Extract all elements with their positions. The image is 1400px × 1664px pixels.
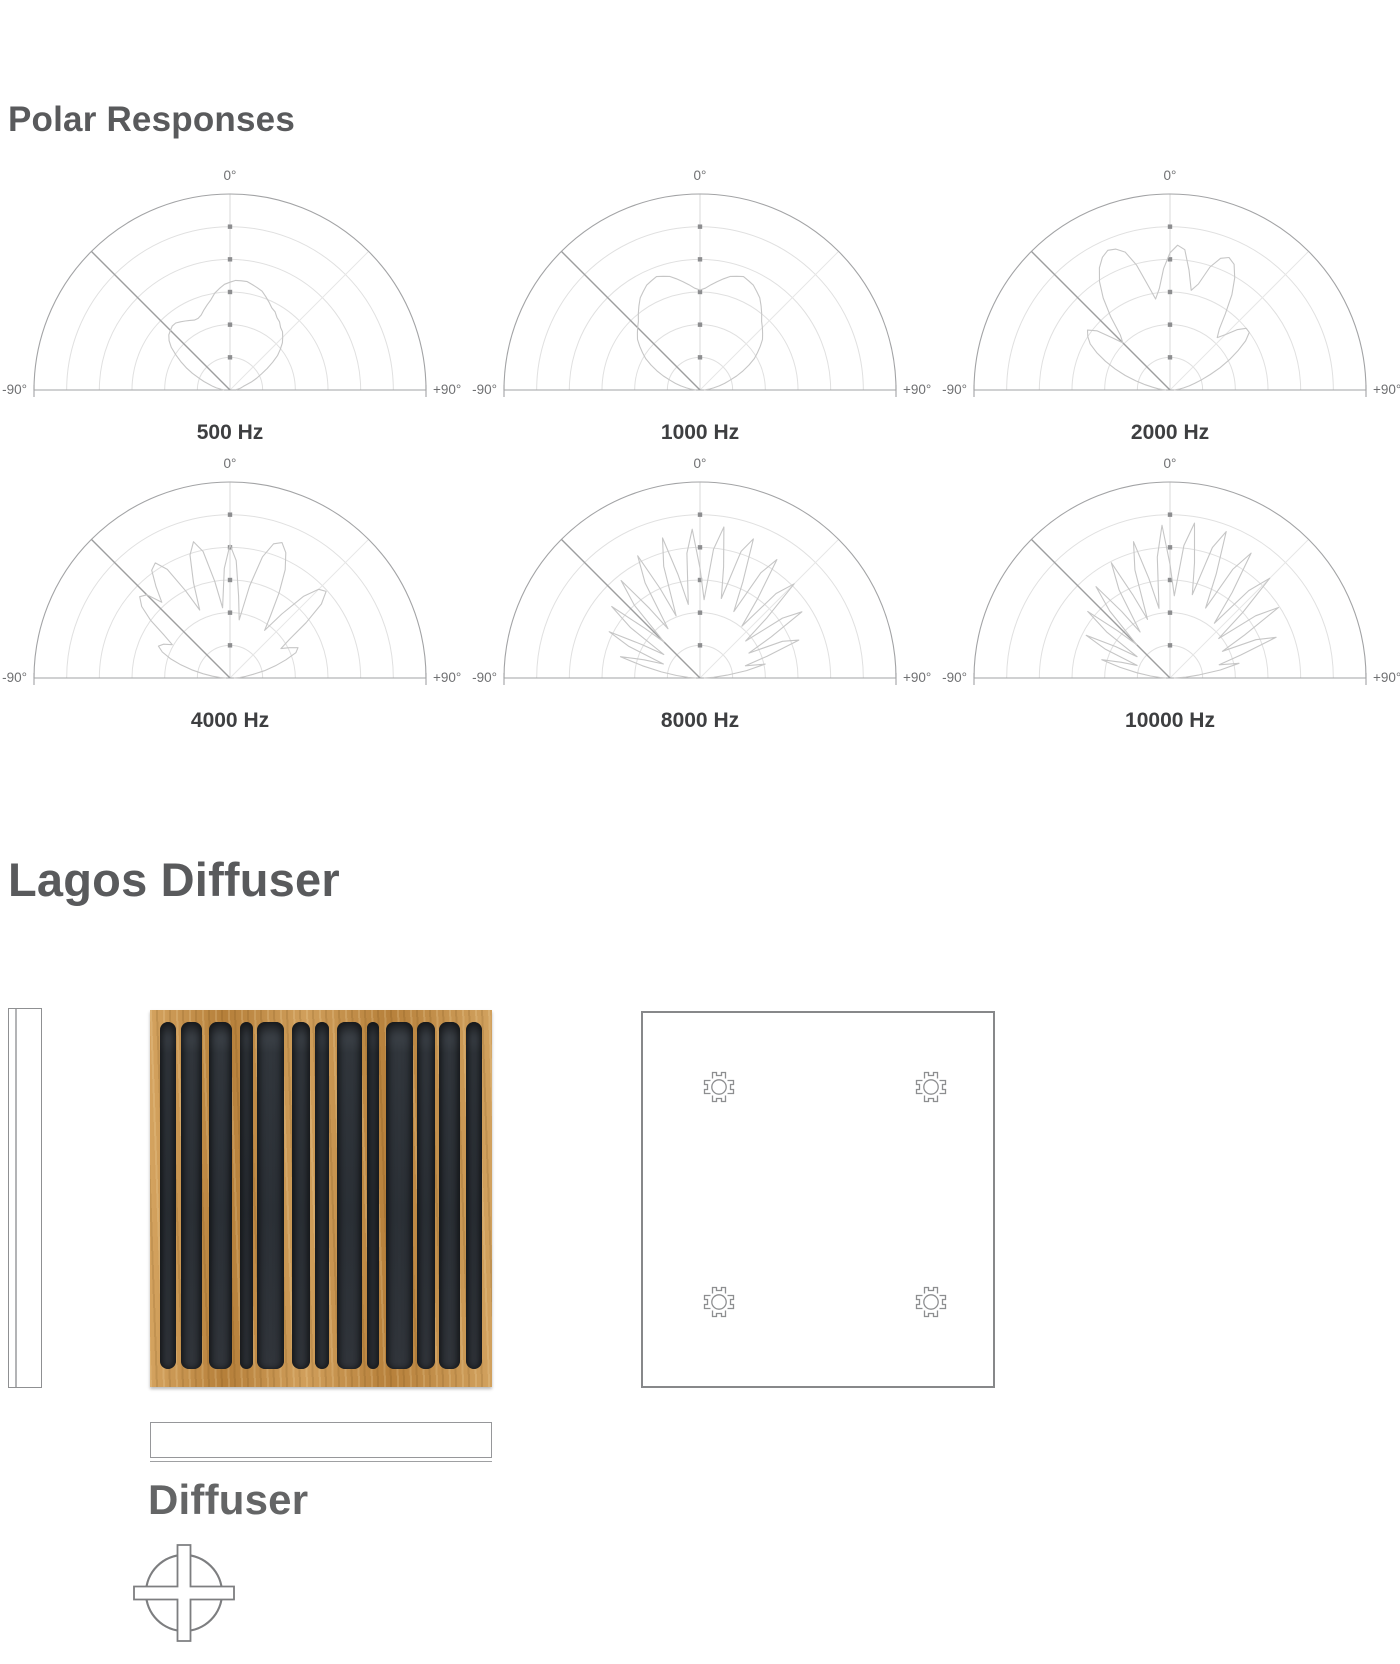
- minus45-marker-line: [91, 539, 230, 678]
- radial-axis-tick: [1168, 290, 1172, 294]
- diffuser-slot: [417, 1022, 435, 1369]
- panel-top-view-baseline: [150, 1461, 492, 1462]
- label-minus90deg: -90°: [942, 670, 967, 685]
- radial-axis-tick: [228, 578, 232, 582]
- extrusion-profile-icon: [914, 1070, 948, 1104]
- panel-top-view-drawing: [150, 1422, 492, 1458]
- radial-axis-tick: [698, 322, 702, 326]
- diffuser-slot: [386, 1022, 413, 1369]
- frequency-label: 8000 Hz: [661, 709, 739, 732]
- radial-axis-tick: [228, 322, 232, 326]
- diffuser-slot: [209, 1022, 233, 1369]
- label-0deg: 0°: [1164, 456, 1177, 471]
- panel-side-view-drawing: [8, 1008, 42, 1388]
- label-plus90deg: +90°: [903, 382, 931, 397]
- radial-axis-tick: [698, 610, 702, 614]
- diffuser-slot: [257, 1022, 284, 1369]
- diffuser-slot: [181, 1022, 203, 1369]
- section-crosshair-icon: [126, 1535, 242, 1651]
- diffuser-slot: [160, 1022, 176, 1369]
- minus45-marker-line: [1031, 251, 1170, 390]
- minus45-marker-line: [561, 539, 700, 678]
- polar-plot-1000hz: 0°-90°+90°1000 Hz: [465, 152, 935, 448]
- extrusion-profile-icon: [702, 1285, 736, 1319]
- diffuser-drawing-label: Diffuser: [148, 1476, 308, 1524]
- radial-axis-tick: [1168, 322, 1172, 326]
- polar-response-curve: [1088, 245, 1250, 390]
- radial-axis-tick: [228, 643, 232, 647]
- diffuser-slot: [439, 1022, 461, 1369]
- label-minus90deg: -90°: [472, 670, 497, 685]
- panel-side-view-skin-line: [15, 1009, 17, 1387]
- radial-axis-tick: [228, 290, 232, 294]
- label-0deg: 0°: [224, 456, 237, 471]
- radial-axis-tick: [1168, 610, 1172, 614]
- polar-plot-4000hz: 0°-90°+90°4000 Hz: [0, 440, 465, 736]
- radial-axis-tick: [698, 224, 702, 228]
- radial-axis-tick: [1168, 512, 1172, 516]
- frequency-label: 4000 Hz: [191, 709, 269, 732]
- radial-axis-tick: [698, 512, 702, 516]
- radial-axis-tick: [698, 355, 702, 359]
- frequency-label: 10000 Hz: [1125, 709, 1215, 732]
- label-minus90deg: -90°: [472, 382, 497, 397]
- label-plus90deg: +90°: [433, 382, 461, 397]
- diffuser-front-photo: [150, 1010, 492, 1387]
- radial-axis-tick: [228, 512, 232, 516]
- crosshair-plus: [134, 1545, 234, 1641]
- diffuser-slot: [367, 1022, 380, 1369]
- radial-axis-tick: [1168, 643, 1172, 647]
- label-0deg: 0°: [694, 168, 707, 183]
- label-plus90deg: +90°: [903, 670, 931, 685]
- label-0deg: 0°: [1164, 168, 1177, 183]
- label-plus90deg: +90°: [1373, 382, 1400, 397]
- polar-plot-8000hz: 0°-90°+90°8000 Hz: [465, 440, 935, 736]
- diffuser-slot: [240, 1022, 253, 1369]
- radial-axis-tick: [698, 643, 702, 647]
- radial-axis-tick: [698, 257, 702, 261]
- polar-response-curve: [1086, 523, 1278, 678]
- diffuser-slot: [337, 1022, 362, 1369]
- minus45-marker-line: [1031, 539, 1170, 678]
- lagos-diffuser-title: Lagos Diffuser: [8, 852, 340, 907]
- diffuser-slot: [315, 1022, 329, 1369]
- label-minus90deg: -90°: [942, 382, 967, 397]
- mounting-plate-drawing: [641, 1011, 995, 1388]
- radial-axis-tick: [698, 545, 702, 549]
- extrusion-profile-icon: [914, 1285, 948, 1319]
- radial-axis-tick: [1168, 355, 1172, 359]
- polar-plot-500hz: 0°-90°+90°500 Hz: [0, 152, 465, 448]
- page: Polar Responses 0°-90°+90°500 Hz0°-90°+9…: [0, 0, 1400, 1664]
- label-minus90deg: -90°: [2, 670, 27, 685]
- radial-axis-tick: [228, 257, 232, 261]
- diffuser-slot: [292, 1022, 310, 1369]
- label-0deg: 0°: [224, 168, 237, 183]
- radial-axis-tick: [228, 610, 232, 614]
- extrusion-profile-icon: [702, 1070, 736, 1104]
- radial-axis-tick: [1168, 224, 1172, 228]
- polar-plot-2000hz: 0°-90°+90°2000 Hz: [935, 152, 1400, 448]
- radial-axis-tick: [1168, 545, 1172, 549]
- minus45-marker-line: [561, 251, 700, 390]
- label-0deg: 0°: [694, 456, 707, 471]
- diffuser-slot: [466, 1022, 482, 1369]
- polar-plot-10000hz: 0°-90°+90°10000 Hz: [935, 440, 1400, 736]
- radial-axis-tick: [228, 355, 232, 359]
- label-minus90deg: -90°: [2, 382, 27, 397]
- minus45-marker-line: [91, 251, 230, 390]
- label-plus90deg: +90°: [433, 670, 461, 685]
- label-plus90deg: +90°: [1373, 670, 1400, 685]
- polar-responses-title: Polar Responses: [8, 100, 295, 140]
- radial-axis-tick: [228, 224, 232, 228]
